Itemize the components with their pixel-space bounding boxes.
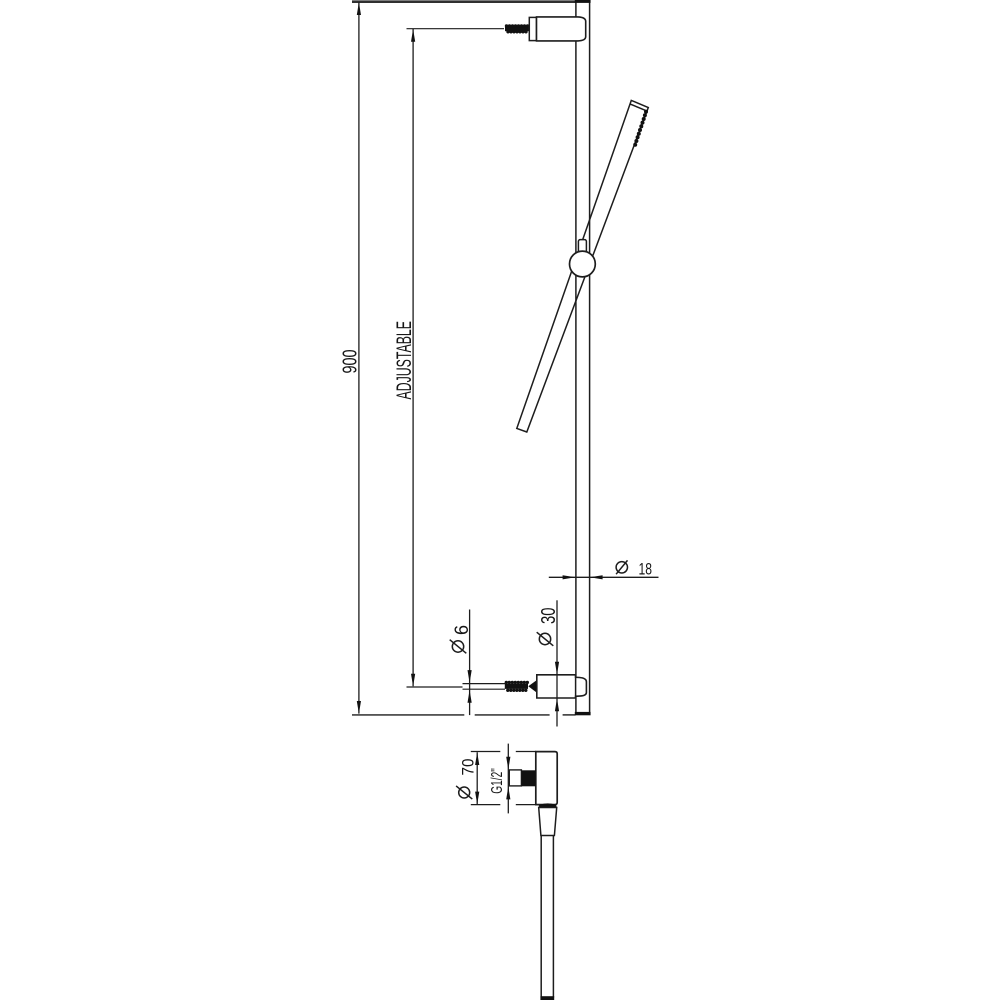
svg-text:18: 18: [639, 560, 653, 578]
svg-text:900: 900: [340, 350, 362, 374]
svg-text:70: 70: [459, 759, 478, 776]
svg-text:6: 6: [452, 625, 473, 635]
svg-text:30: 30: [538, 608, 560, 625]
svg-text:G1/2": G1/2": [489, 768, 506, 794]
svg-text:ADJUSTABLE: ADJUSTABLE: [393, 321, 416, 400]
